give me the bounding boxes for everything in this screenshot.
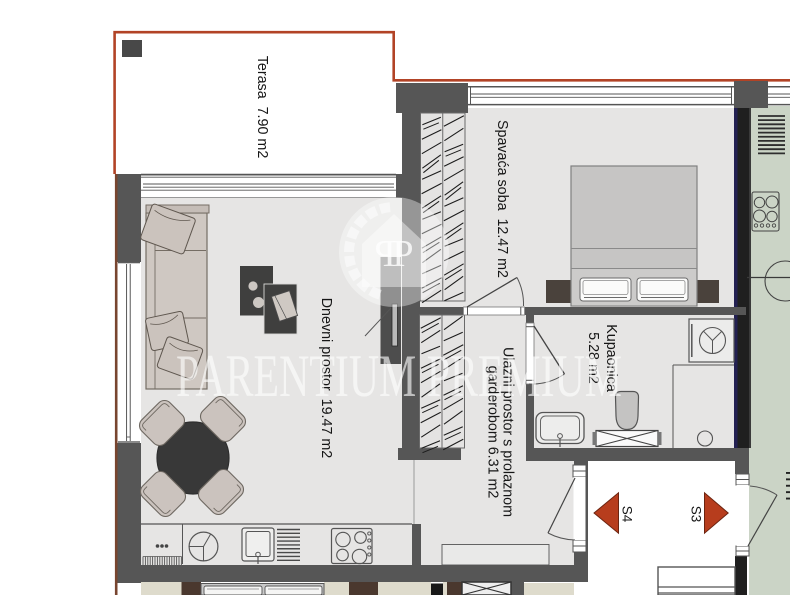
- svg-text:P: P: [374, 233, 395, 275]
- svg-text:PARENTIUM PREMIUM: PARENTIUM PREMIUM: [176, 343, 622, 409]
- svg-text:Terasa 7.90 m2: Terasa 7.90 m2: [254, 56, 270, 159]
- svg-text:Spavaća soba 12.47 m2: Spavaća soba 12.47 m2: [494, 120, 510, 278]
- svg-text:S4: S4: [620, 506, 635, 523]
- svg-text:S3: S3: [689, 506, 704, 523]
